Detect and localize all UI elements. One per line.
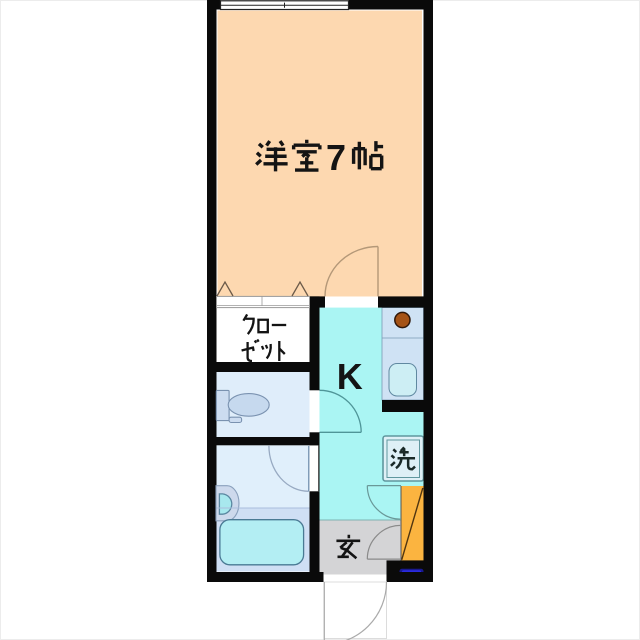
svg-text:7: 7 — [326, 137, 346, 178]
svg-text:K: K — [337, 356, 363, 397]
